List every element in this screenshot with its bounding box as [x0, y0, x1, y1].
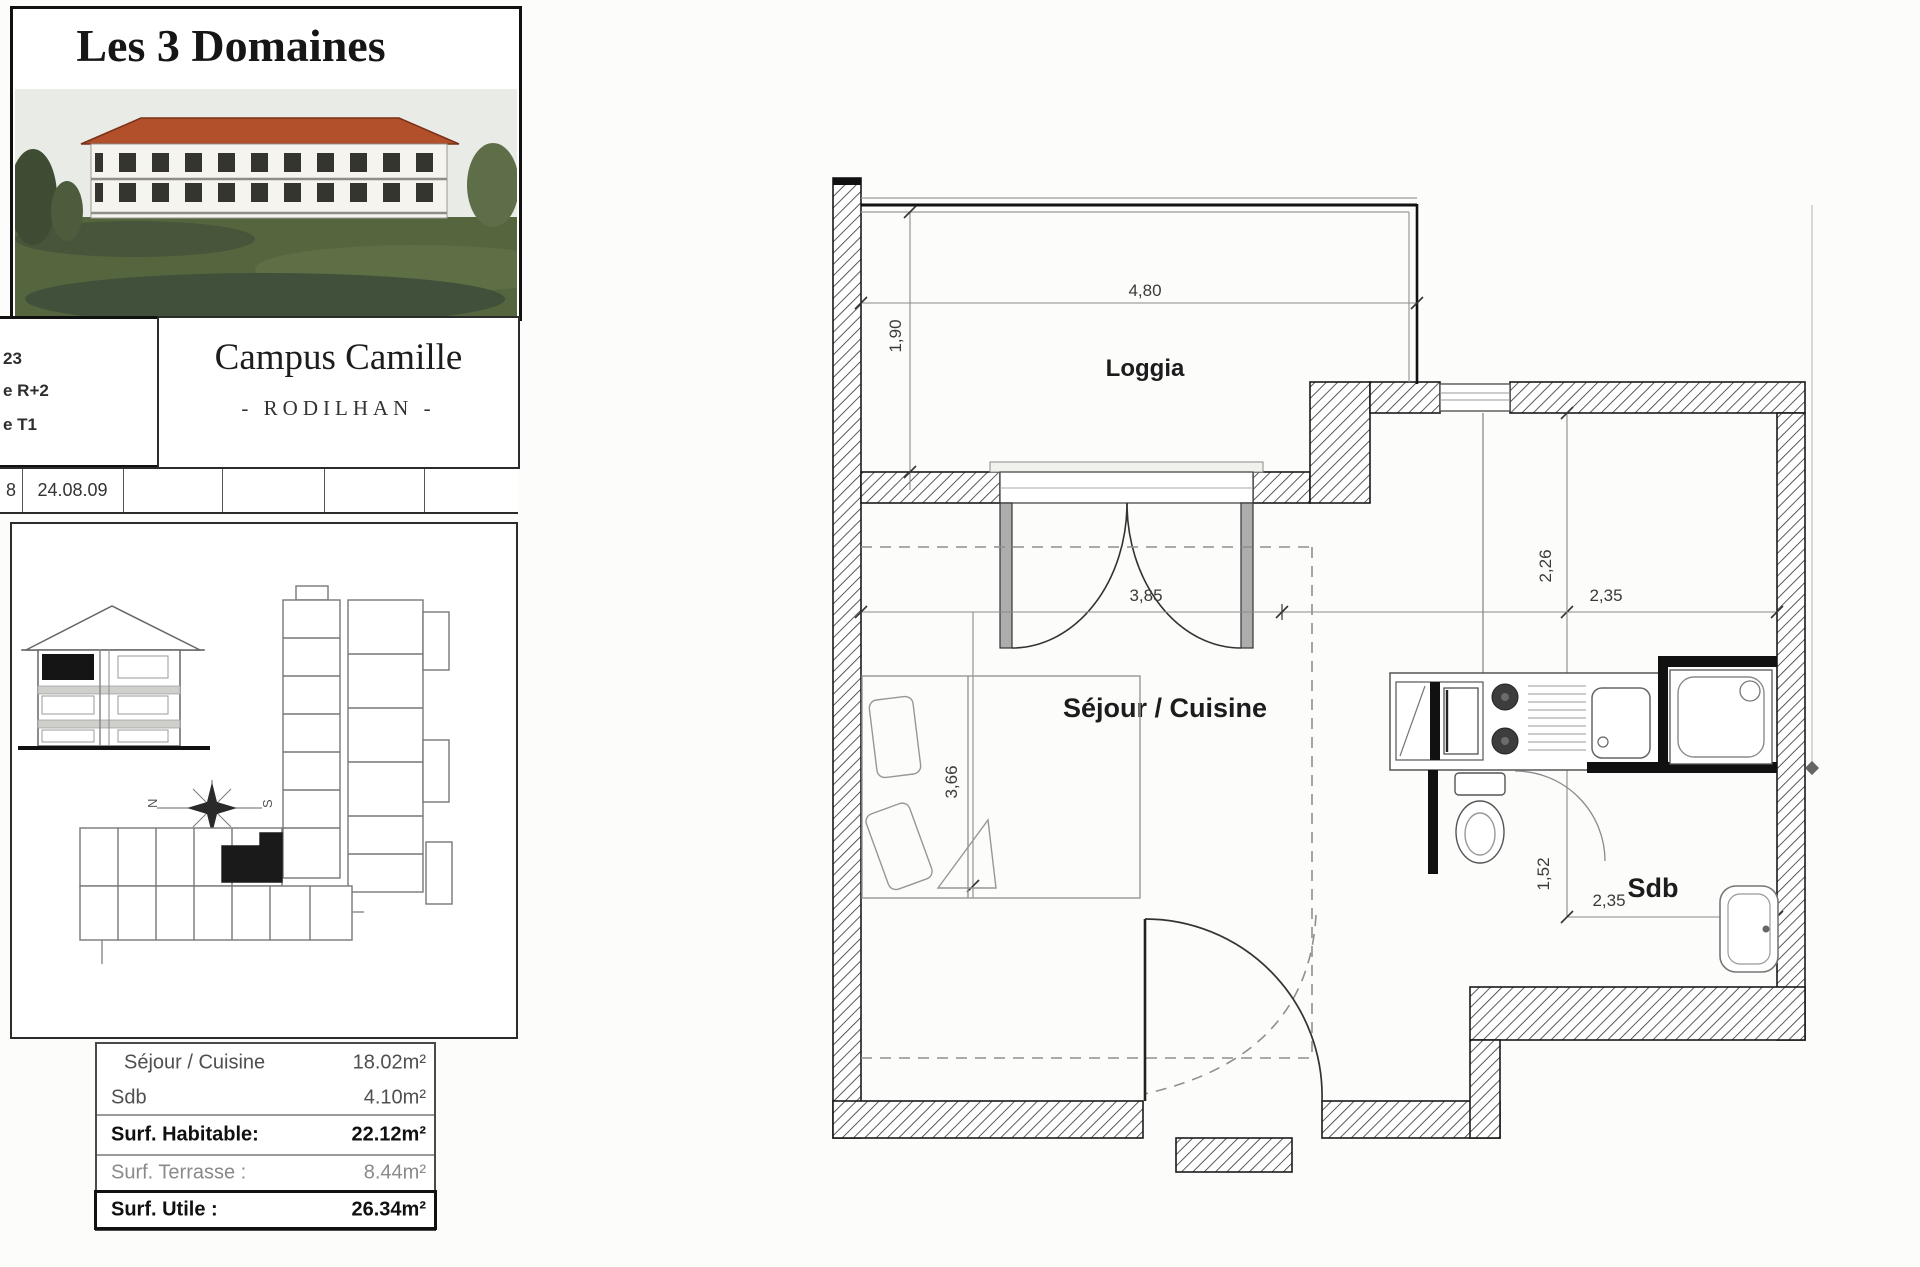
wall-step [1310, 382, 1370, 503]
meta-cell: 23 e R+2 e T1 [0, 316, 160, 468]
wall-sdb-top-left [1370, 382, 1440, 413]
revision-index: 8 [0, 469, 22, 512]
sdb-door-dashed-swing [1144, 915, 1316, 1094]
revision-row: 8 24.08.09 [0, 467, 518, 514]
area-table: Séjour / Cuisine 18.02m² Sdb 4.10m² Surf… [95, 1042, 436, 1231]
dimension-lines [855, 206, 1783, 923]
dim-sejour-width: 3,85 [1129, 586, 1162, 605]
project-cell: Campus Camille - RODILHAN - [157, 316, 520, 469]
wall-sdb-bottom [1470, 987, 1805, 1040]
building-render [81, 118, 459, 218]
french-door [990, 462, 1263, 648]
wall-corridor-stub [1176, 1138, 1292, 1172]
toilet-icon [1455, 773, 1505, 863]
fridge-icon [1396, 682, 1483, 760]
plan-sheet: Les 3 Domaines [0, 0, 1920, 1267]
row-label: Surf. Habitable: [111, 1124, 259, 1147]
meta-line-3: e T1 [3, 415, 37, 435]
dim-sdb-depth-lower: 1,52 [1534, 857, 1553, 890]
room-label-loggia: Loggia [1106, 355, 1185, 382]
door-swing-right [1127, 503, 1241, 648]
table-row: Surf. Terrasse : 8.44m² [97, 1156, 434, 1190]
row-label: Surf. Utile : [111, 1199, 218, 1222]
table-row: Séjour / Cuisine 18.02m² [97, 1044, 434, 1082]
elevation-drawing [20, 606, 208, 748]
dim-sejour-depth: 3,66 [942, 765, 961, 798]
dim-sdb-width-lower: 2,35 [1592, 891, 1625, 910]
wall-bottom-left [833, 1101, 1143, 1138]
dim-sdb-depth-upper: 2,26 [1536, 549, 1555, 582]
kitchen-counter [1390, 673, 1663, 770]
blanket-fold [938, 820, 996, 888]
wall-sdb-connector [1470, 1040, 1500, 1138]
door-swing-left [1012, 503, 1127, 648]
row-value: 26.34m² [352, 1199, 427, 1222]
wall-right [1777, 413, 1805, 1040]
title-block: Les 3 Domaines [10, 6, 522, 321]
room-label-sdb: Sdb [1628, 873, 1679, 903]
sheet-title: Les 3 Domaines [31, 19, 431, 72]
row-label: Surf. Terrasse : [111, 1162, 246, 1185]
washbasin-icon [1720, 886, 1778, 972]
entry-door [1145, 919, 1322, 1101]
door-jamb-right [1241, 503, 1253, 648]
wall-left [833, 178, 861, 1138]
table-row: Sdb 4.10m² [97, 1082, 434, 1116]
dim-sdb-width-upper: 2,35 [1589, 586, 1622, 605]
dim-loggia-width: 4,80 [1128, 281, 1161, 300]
table-row: Surf. Habitable: 22.12m² [97, 1116, 434, 1156]
compass-west-label: N [145, 799, 160, 808]
dim-loggia-depth: 1,90 [886, 319, 905, 352]
sink-icon [1592, 688, 1650, 758]
pillow [864, 801, 935, 892]
sdb-window [1440, 384, 1510, 411]
wall-loggia-right [1253, 472, 1310, 503]
meta-line-2: e R+2 [3, 381, 49, 401]
highlighted-unit-elevation [42, 654, 94, 680]
wall-loggia-left [861, 472, 1000, 503]
row-value: 8.44m² [364, 1162, 426, 1185]
meta-line-1: 23 [3, 349, 22, 369]
table-row-total: Surf. Utile : 26.34m² [94, 1190, 437, 1230]
row-value: 18.02m² [353, 1052, 426, 1075]
room-label-sejour: Séjour / Cuisine [1063, 693, 1267, 723]
floor-plan: 4,80 1,90 3,85 3,66 2,26 2,35 1,52 2,35 … [520, 0, 1920, 1267]
row-value: 4.10m² [364, 1087, 426, 1110]
wall-sdb-top-right [1510, 382, 1805, 413]
location-drawings: N S [10, 522, 518, 1039]
row-label: Séjour / Cuisine [124, 1052, 265, 1075]
building-photo [15, 89, 517, 316]
sdb-door-swing [1515, 771, 1605, 861]
shower-icon [1670, 670, 1772, 764]
door-jamb-left [1000, 503, 1012, 648]
compass-east-label: S [260, 799, 275, 808]
pillow [868, 696, 921, 779]
row-label: Sdb [111, 1087, 147, 1110]
revision-date: 24.08.09 [22, 469, 123, 512]
row-value: 22.12m² [352, 1124, 427, 1147]
project-city: - RODILHAN - [159, 396, 518, 421]
project-name: Campus Camille [159, 336, 518, 379]
